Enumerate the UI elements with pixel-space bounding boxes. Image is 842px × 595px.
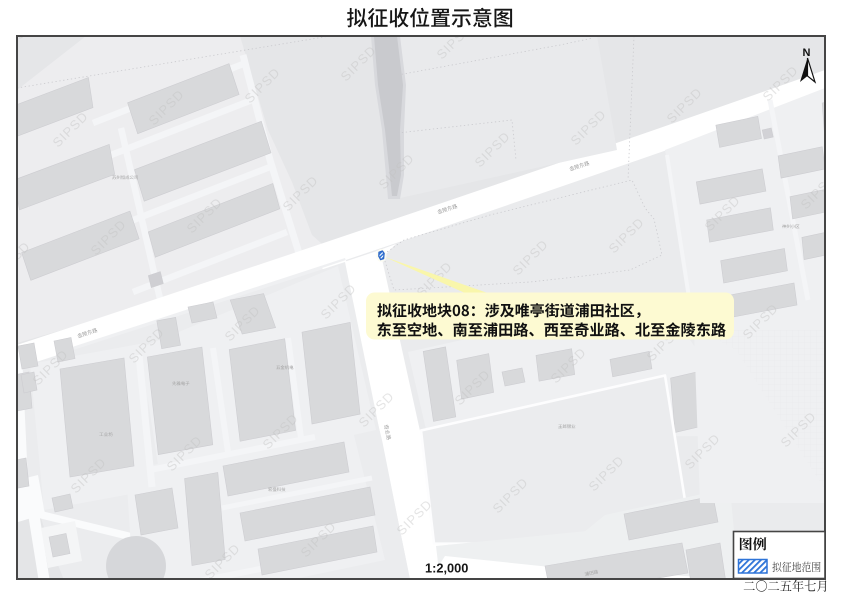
svg-text:SIPSD: SIPSD	[836, 278, 842, 320]
svg-text:N: N	[803, 47, 811, 59]
svg-text:SIPSD: SIPSD	[0, 476, 13, 518]
svg-text:1:2,000: 1:2,000	[425, 561, 468, 576]
svg-text:SIPSD: SIPSD	[530, 0, 572, 40]
